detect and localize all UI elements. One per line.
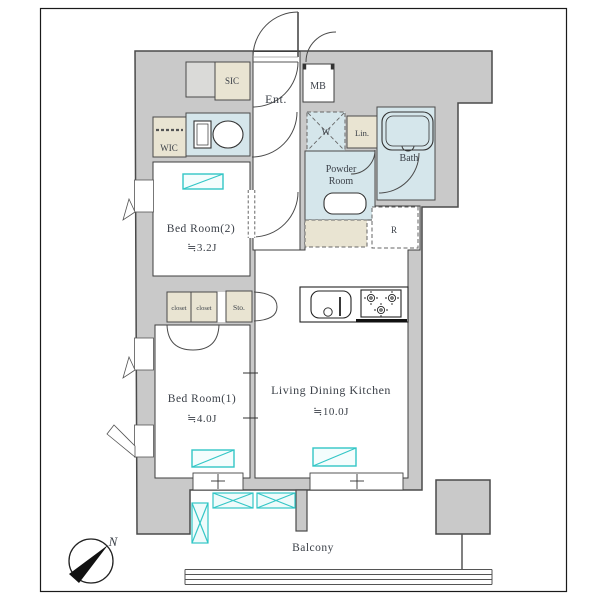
ldk-balcony-door — [310, 473, 403, 490]
linen-label: Lin. — [355, 128, 369, 138]
floor-plan-page: N SIC Ent. MB WIC W Lin. Powder Room Bat… — [0, 0, 600, 600]
powder-sink-icon — [324, 193, 366, 214]
powder-room-label-2: Room — [329, 176, 354, 187]
entrance-corridor-floor — [253, 52, 300, 251]
left-window-3 — [107, 425, 154, 457]
outdoor-unit-spaces — [192, 493, 295, 543]
storage-label: Sto. — [233, 303, 245, 312]
washer-label: W — [322, 127, 331, 137]
closet1-label: closet — [171, 305, 186, 312]
bedroom1-balcony-door — [193, 473, 243, 490]
toilet-tank — [194, 121, 211, 148]
balcony-divider-stub — [296, 490, 307, 531]
north-arrow-icon — [69, 545, 108, 583]
ldk-label: Living Dining Kitchen — [271, 383, 391, 397]
entrance-label: Ent. — [265, 92, 287, 106]
mb-tick-left — [303, 64, 306, 70]
bedroom2-label: Bed Room(2) — [167, 223, 235, 235]
mb-tick-right — [331, 64, 334, 70]
powder-room-label-1: Powder — [326, 164, 357, 175]
bedroom1-size: ≒4.0J — [187, 413, 217, 425]
toilet-bowl-icon — [213, 121, 243, 148]
balcony-railing — [185, 570, 492, 585]
bedroom2-door-opening — [247, 190, 256, 238]
sic-label: SIC — [225, 76, 239, 86]
bedroom1-label: Bed Room(1) — [168, 393, 236, 405]
bottom-right-wall-block — [436, 480, 490, 534]
bedroom2-window-icon — [183, 174, 223, 189]
compass: N — [69, 534, 119, 583]
floor-plan-drawing: N SIC Ent. MB WIC W Lin. Powder Room Bat… — [0, 0, 600, 600]
bedroom1-window-icon — [192, 450, 234, 467]
ldk-size: ≒10.0J — [313, 406, 349, 418]
refrigerator-label: R — [391, 225, 397, 235]
counter-space — [305, 220, 367, 247]
closet2-label: closet — [196, 305, 211, 312]
entrance-step — [186, 62, 215, 97]
wic-label: WIC — [160, 143, 178, 153]
bedroom2-size: ≒3.2J — [187, 242, 217, 254]
meter-box-label: MB — [310, 81, 326, 92]
closet-gap — [217, 292, 226, 322]
ldk-window-icon — [313, 448, 356, 466]
bath-label: Bath — [400, 153, 419, 164]
compass-north-label: N — [108, 534, 119, 549]
balcony-label: Balcony — [292, 542, 334, 554]
